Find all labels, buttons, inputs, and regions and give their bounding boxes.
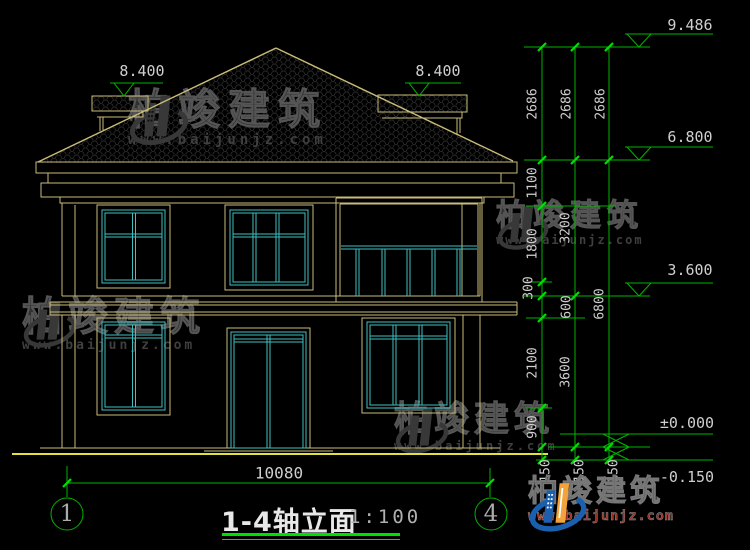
dim-label: 900 [526,415,541,438]
level-label-right-ridge: 8.400 [415,62,460,80]
first-floor-window-right [362,318,455,413]
level-label-left-ridge: 8.400 [119,62,164,80]
level-label-first-floor: ±0.000 [660,414,714,432]
eave-cornice [36,162,517,203]
dim-label: 2100 [526,347,541,378]
second-floor-window-middle [225,205,313,290]
entry-door [227,328,310,448]
dim-label: 2686 [594,88,609,119]
dim-label: 150 [573,459,588,482]
dim-label: 2686 [526,88,541,119]
first-floor-window-left [97,318,170,415]
axis-number-1: 1 [60,501,75,527]
elevation-linework [0,0,750,550]
dim-label: 150 [539,459,554,482]
level-markers [110,34,713,460]
cad-elevation-drawing: 柏竣建筑 www.baijunjz.com 柏竣建筑 www.baijunjz.… [0,0,750,550]
title-underline-thin [222,539,400,540]
balcony-railing [336,198,482,302]
dimension-chains [524,43,713,464]
level-label-ground: -0.150 [660,468,714,486]
dim-label: 3200 [559,212,574,243]
level-label-second-floor: 3.600 [667,261,712,279]
drawing-scale: 1:100 [349,506,421,528]
dim-label: 150 [607,459,622,482]
level-label-eave: 6.800 [667,128,712,146]
axis-number-4: 4 [484,501,499,527]
level-label-ridge: 9.486 [667,16,712,34]
second-floor-window-left [97,205,170,288]
dim-label: 1100 [526,167,541,198]
dim-label: 3600 [559,356,574,387]
dim-label: 300 [522,276,537,299]
dim-label: 600 [560,295,575,318]
width-dim-label: 10080 [255,464,303,483]
dim-label: 1800 [526,228,541,259]
dim-label: 2686 [560,88,575,119]
title-underline [222,533,400,536]
dim-label: 6800 [593,288,608,319]
